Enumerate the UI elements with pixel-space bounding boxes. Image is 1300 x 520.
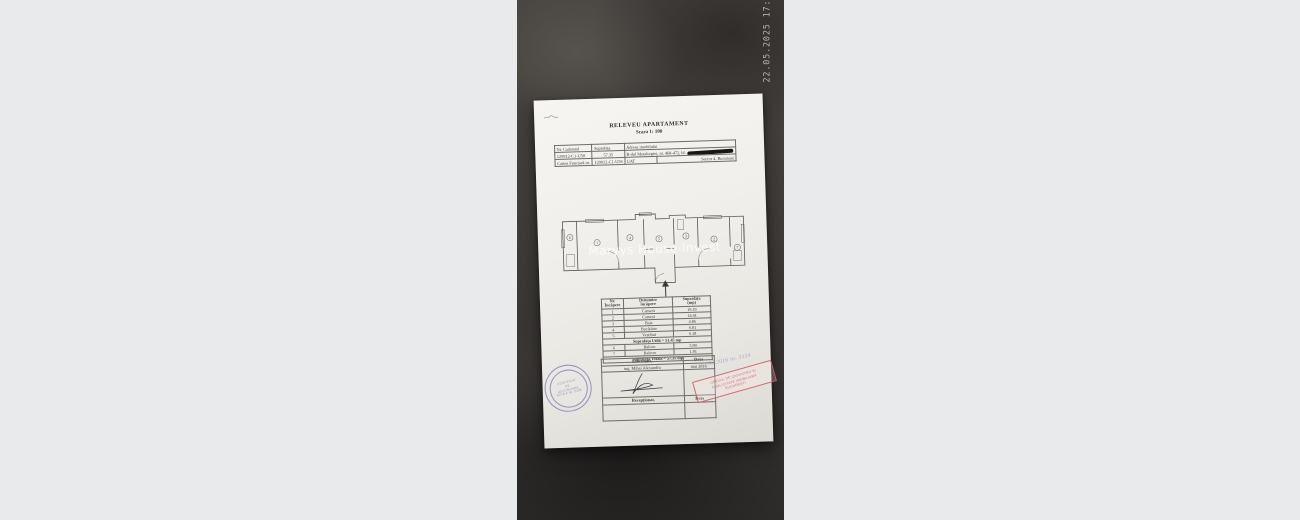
header-sup-line2: (mp) (687, 300, 696, 305)
room-number: 6 (569, 235, 571, 240)
handwritten-mark (543, 113, 559, 121)
room-number: 4 (629, 235, 631, 240)
empty-cell (603, 402, 685, 421)
cadastral-header-table: Nr. Cadastral Suprafața Adresa imobilulu… (554, 139, 737, 167)
empty-cell (684, 401, 716, 418)
room-number: 7 (736, 245, 738, 250)
round-stamp-inner: CERTIFICAT DE AUTORIZARE RO-B-F Nr. 0108 (545, 365, 591, 411)
header-den-line2: încăpere (640, 301, 655, 306)
table-row (603, 401, 716, 421)
uat-label: UAT (625, 156, 658, 164)
header-nr: Nr. Încăpere (601, 298, 623, 308)
document-page: RELEVEU APARTAMENT Scara 1: 100 Nr. Cada… (534, 93, 774, 448)
rooms-area-table: Nr. Încăpere Denumire încăpere Suprafața… (601, 295, 713, 363)
cf-number: 129912-C1-U58 (592, 157, 624, 165)
round-authorization-stamp: CERTIFICAT DE AUTORIZARE RO-B-F Nr. 0108 (540, 360, 597, 417)
signature-cell (602, 369, 684, 398)
cf-label: Cartea Funciară nr. (555, 158, 593, 166)
signature-squiggle (612, 370, 673, 396)
room-number: 5 (658, 236, 660, 241)
room-number: 3 (685, 233, 687, 238)
photo-timestamp: 22.05.2025 17:21 (763, 3, 774, 83)
header-nr-line2: Încăpere (605, 302, 621, 307)
photo-viewer-image: 22.05.2025 17:21 RELEVEU APARTAMENT Scar… (517, 0, 784, 520)
